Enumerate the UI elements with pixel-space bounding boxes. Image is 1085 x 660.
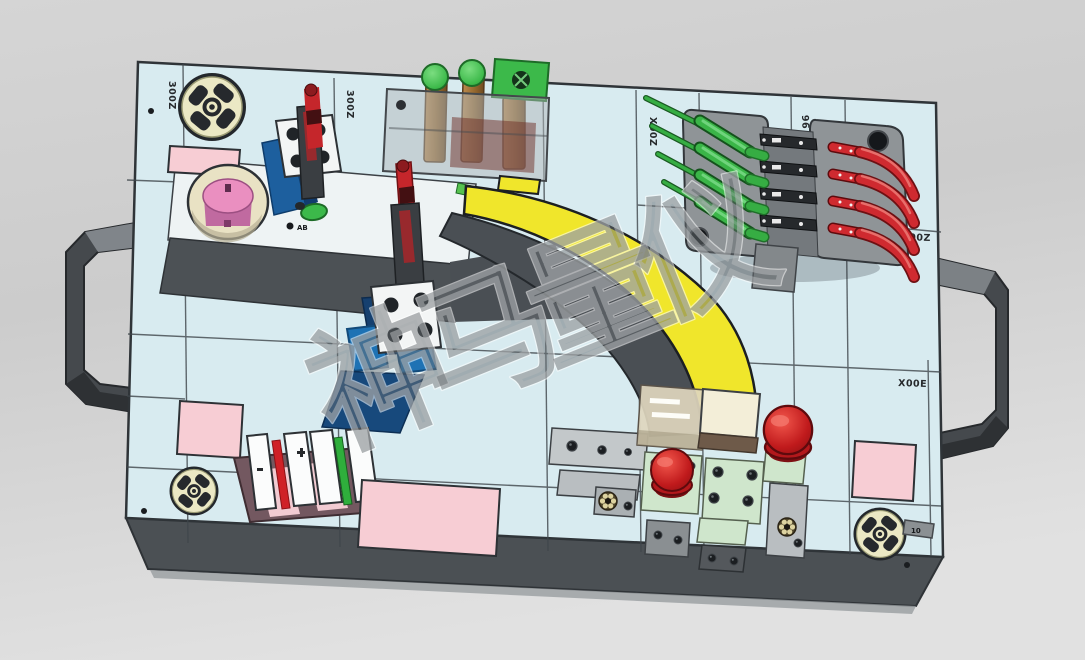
locator-disc-top-left [178,73,246,141]
red-knob [764,406,812,462]
datum-dot [148,108,154,114]
pink-pad [177,401,243,458]
sunflower-screw [599,492,617,510]
label-top-mid: X00Z [647,117,658,146]
pale-green-block [702,458,764,524]
station-screw [868,131,888,151]
pink-pad-large [358,480,500,556]
sunflower-screw [778,518,796,536]
disc-tab-label: 10 [911,527,921,535]
red-knob [651,449,693,498]
cad-fixture-render: 300Z 300Z X00Z 96 300Z X00E [0,0,1085,660]
locator-disc-bottom-left [170,467,219,516]
label-right-mid: X00E [898,378,927,390]
locator-disc-bottom-right [853,507,906,560]
green-pin-cap [422,64,448,90]
label-ab: AB [297,224,308,232]
label-top-left: 300Z [166,81,177,110]
ivory-cover [700,389,760,438]
pink-pad-bottom-right [852,441,916,501]
fixture-scene: 300Z 300Z X00Z 96 300Z X00E [0,0,1085,660]
green-pin-cap [459,60,485,86]
label-clamp1-side: 300Z [344,90,355,119]
label-top-right: 96 [799,115,810,130]
